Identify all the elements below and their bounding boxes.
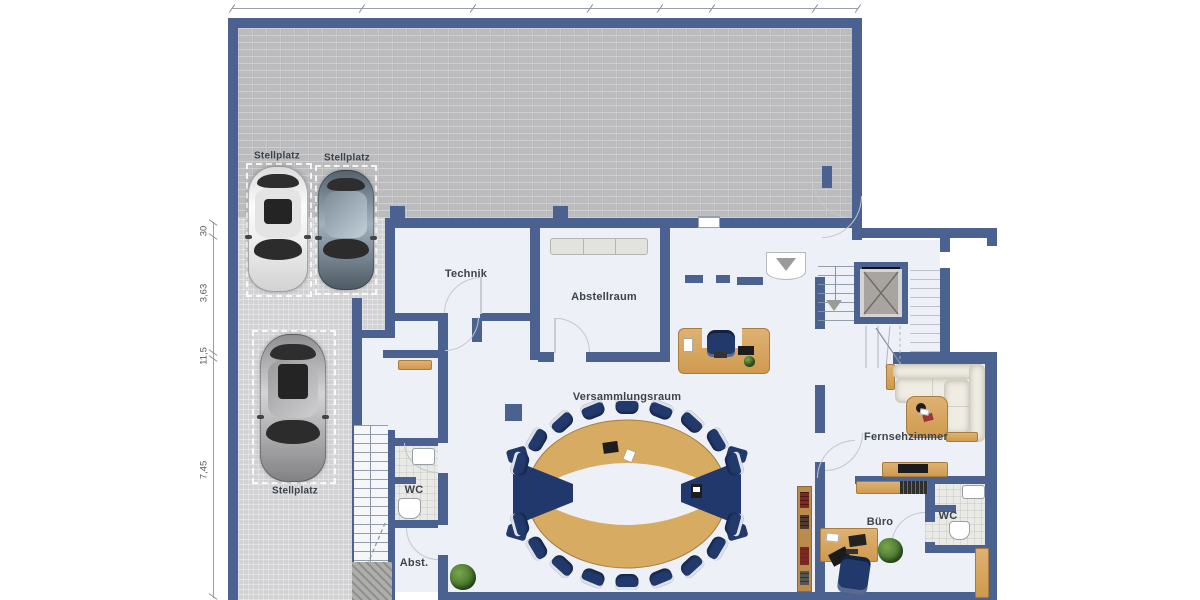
- sofa-back-right: [969, 364, 985, 442]
- car-mirror: [257, 415, 264, 419]
- desk-monitor: [848, 534, 866, 547]
- elevator-cab: [864, 272, 898, 314]
- bookshelf: [797, 486, 812, 592]
- car-sunroof: [278, 364, 309, 399]
- dimension-label: 11,5: [199, 347, 210, 365]
- room-label-wc-small: WC: [405, 484, 424, 496]
- car-windshield: [323, 239, 368, 259]
- wall: [388, 313, 445, 321]
- dimension-line-left: [213, 222, 214, 598]
- magazine: [920, 408, 930, 415]
- bench-right: [975, 548, 989, 598]
- desk-paper: [683, 338, 693, 352]
- elevator: [854, 262, 908, 324]
- wall: [940, 238, 950, 252]
- stairs-void-hatch: [352, 562, 392, 600]
- tv: [898, 464, 928, 473]
- wall: [440, 592, 997, 600]
- wall: [940, 268, 950, 356]
- plant-small: [744, 356, 755, 367]
- wall: [893, 352, 997, 364]
- car-gray-top-view: [318, 170, 374, 290]
- sofa-armrest: [946, 432, 978, 442]
- desk-paper: [826, 532, 840, 542]
- door-leaf: [554, 318, 556, 353]
- car-mirror: [370, 236, 377, 240]
- car-rear-window: [327, 178, 366, 191]
- floor-plan: 30 3,63 11,5 7,45 Stellplatz Stellplatz …: [0, 0, 1200, 600]
- hall-bench: [398, 360, 432, 370]
- wall: [815, 385, 825, 433]
- wall: [390, 520, 438, 528]
- wall: [383, 350, 443, 358]
- elevator-x-icon: [864, 272, 898, 314]
- wall: [385, 218, 855, 228]
- room-label-wc-main: WC: [939, 510, 958, 522]
- stairs-flight-below: [856, 326, 906, 368]
- car-mirror: [304, 235, 311, 239]
- car-white-top-view: [248, 166, 308, 292]
- dimension-tick: [855, 4, 862, 13]
- door-marker-triangle-icon: [776, 258, 796, 271]
- wall: [815, 462, 825, 592]
- elevator-door: [862, 267, 900, 269]
- wall: [438, 473, 448, 525]
- dimension-line-top: [232, 8, 858, 9]
- wall: [228, 18, 862, 28]
- dimension-label: 3,63: [199, 284, 210, 303]
- dimension-label: 7,45: [199, 461, 210, 480]
- window: [698, 216, 720, 228]
- wall: [737, 277, 763, 285]
- stairs-dashed: [910, 270, 940, 356]
- door-leaf: [480, 277, 482, 314]
- wall: [586, 352, 670, 362]
- car-silver-top-view: [260, 334, 326, 482]
- plant-abst: [450, 564, 476, 590]
- car-roof: [325, 191, 367, 238]
- office-chair: [837, 554, 872, 596]
- parking-stall-label: Stellplatz: [254, 151, 300, 162]
- wall: [538, 352, 554, 362]
- room-label-technik: Technik: [445, 268, 487, 280]
- books: [800, 547, 809, 565]
- car-sunroof: [264, 199, 292, 224]
- wall: [862, 228, 997, 238]
- sink: [412, 448, 435, 465]
- wall: [390, 206, 405, 218]
- room-label-buero: Büro: [867, 516, 893, 528]
- wall: [660, 228, 670, 362]
- desk-keyboard: [846, 549, 858, 554]
- car-windshield: [254, 239, 303, 260]
- room-label-abstellraum: Abstellraum: [571, 291, 637, 303]
- car-rear-window: [270, 344, 316, 360]
- storage-shelf: [550, 238, 648, 255]
- dimension-label: 30: [199, 226, 210, 237]
- room-label-versammlungsraum: Versammlungsraum: [573, 391, 681, 403]
- chair: [616, 574, 639, 590]
- stairs-up: [818, 266, 854, 322]
- wall: [987, 228, 997, 246]
- wall: [385, 228, 395, 338]
- desk-monitor: [738, 346, 754, 355]
- stairs-direction-arrow-icon: [826, 300, 842, 311]
- car-windshield: [266, 420, 320, 445]
- wall: [480, 313, 538, 321]
- desk-keyboard: [714, 352, 727, 358]
- radiator: [900, 481, 928, 494]
- toilet: [949, 521, 970, 540]
- toilet: [398, 498, 421, 519]
- books: [800, 492, 809, 508]
- wall: [228, 18, 238, 600]
- car-mirror: [315, 236, 322, 240]
- car-rear-window: [257, 174, 299, 188]
- room-label-fernsehzimmer: Fernsehzimmer: [864, 431, 948, 443]
- car-mirror: [322, 415, 329, 419]
- plant-buero: [878, 538, 903, 563]
- books: [800, 515, 809, 529]
- books: [800, 571, 809, 585]
- car-mirror: [245, 235, 252, 239]
- wall: [553, 206, 568, 218]
- sink: [962, 485, 985, 499]
- wall: [530, 228, 540, 360]
- wall: [716, 275, 730, 283]
- parking-stall-label: Stellplatz: [272, 486, 318, 497]
- parking-stall-label: Stellplatz: [324, 153, 370, 164]
- room-label-abst: Abst.: [400, 557, 429, 569]
- wall: [852, 18, 862, 178]
- wall: [685, 275, 703, 283]
